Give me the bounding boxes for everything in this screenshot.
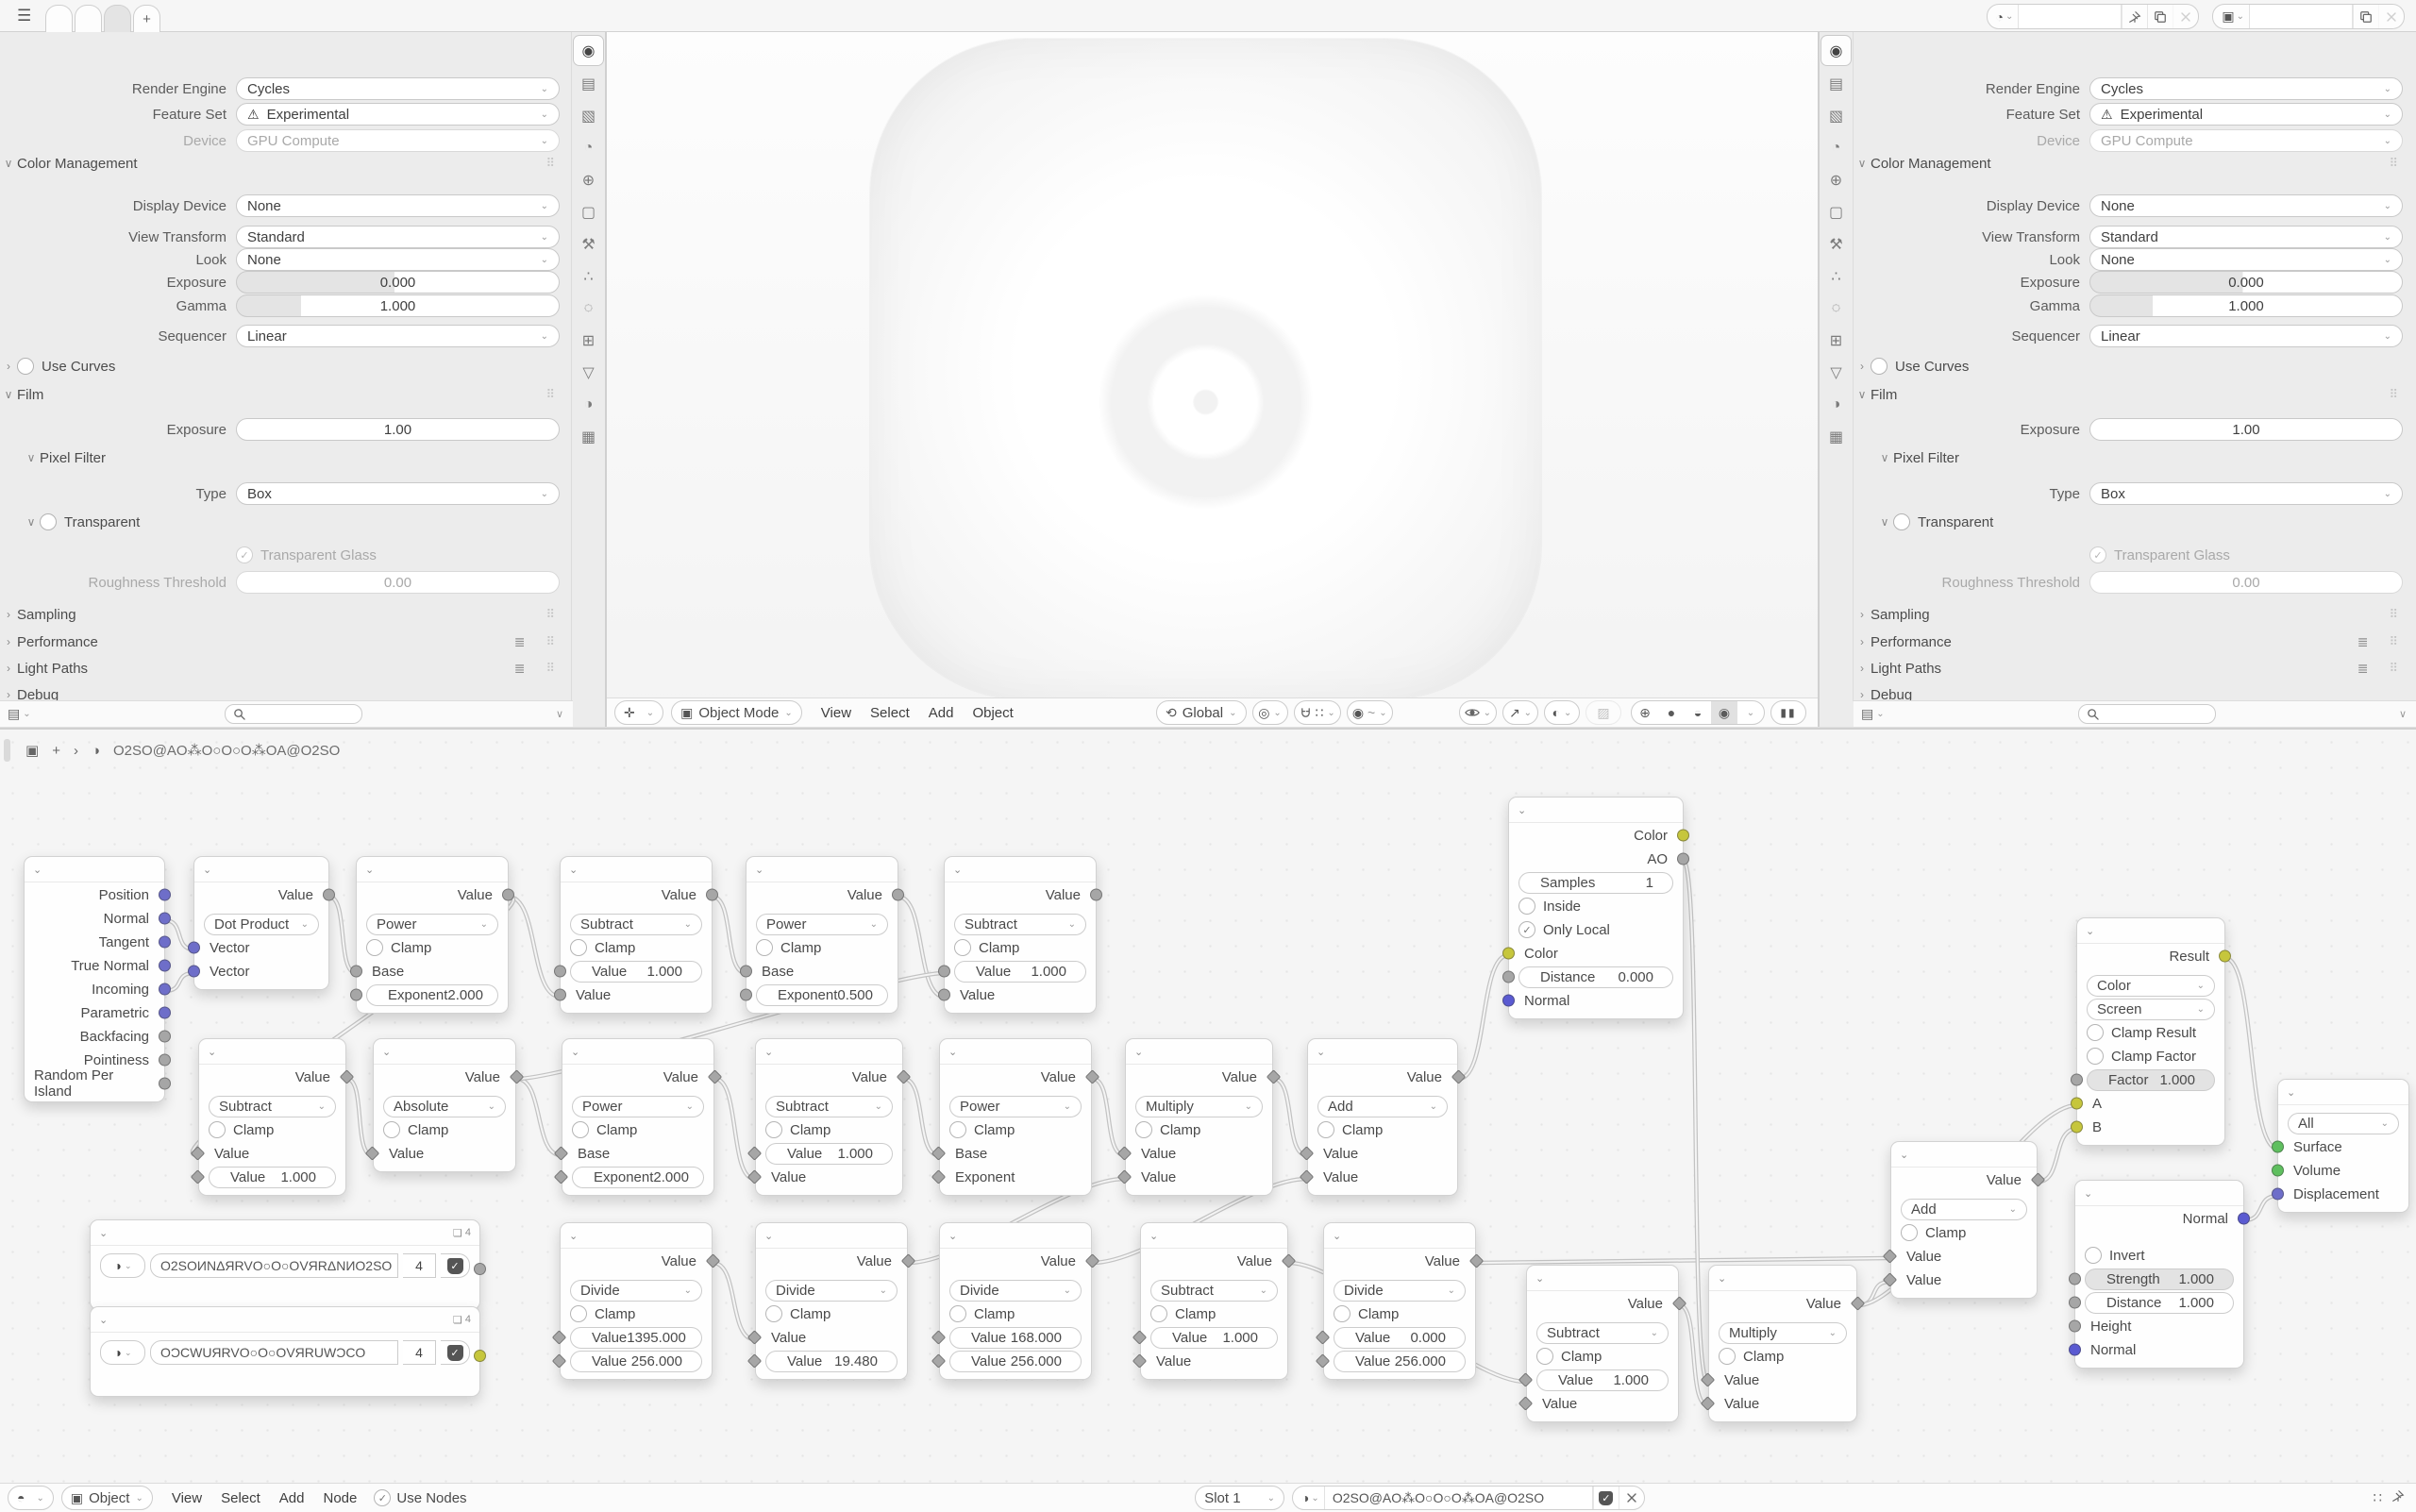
socket[interactable] [1316,1330,1331,1345]
socket[interactable] [1117,1169,1132,1184]
section-color-management[interactable]: ∨Color Management⠿ [1854,154,2416,173]
node-header[interactable]: ⌄ [940,1039,1091,1065]
node-math[interactable]: ⌄ValuePower⌄ClampBaseExponent2.000 [562,1038,714,1196]
tab-data[interactable]: ▽ [1821,358,1851,387]
node-header[interactable]: ⌄ [194,857,328,882]
material-datablock-button[interactable]: ◑⌄ [100,1340,145,1365]
socket[interactable] [159,889,171,901]
socket[interactable] [2069,1344,2081,1356]
tab-texture[interactable]: ▦ [574,422,603,451]
socket[interactable] [474,1350,486,1362]
section-chevron-icon[interactable]: ∨ [23,515,40,529]
menu-node[interactable]: Node [324,1490,358,1506]
socket[interactable] [510,1069,525,1084]
presets-icon[interactable]: ≣ [2357,661,2369,677]
socket[interactable] [188,942,200,954]
socket[interactable] [323,889,335,901]
grip-icon[interactable]: ⠿ [2389,661,2399,676]
node-checkbox[interactable] [2085,1247,2102,1264]
node-checkbox[interactable] [1317,1121,1334,1138]
tab-texture[interactable]: ▦ [1821,422,1851,451]
socket[interactable] [747,1353,763,1369]
node-math[interactable]: ⌄ValueDot Product⌄VectorVector [193,856,329,990]
menu-add[interactable]: Add [929,705,954,721]
visibility-button[interactable]: ⌄ [1459,700,1497,725]
value-exposure[interactable]: 1.00 [2089,418,2403,441]
grip-icon[interactable]: ⠿ [545,387,556,402]
node-checkbox[interactable] [1334,1305,1351,1322]
section-chevron-icon[interactable]: › [1854,688,1871,701]
node-header[interactable]: ⌄❏4 [91,1307,479,1333]
tab-output[interactable]: ▤ [574,69,603,98]
socket[interactable] [931,1353,947,1369]
socket[interactable] [159,1031,171,1043]
dropdown-feature-set[interactable]: ⚠Experimental⌄ [236,103,560,126]
node-header[interactable]: ⌄ [1308,1039,1457,1065]
user-count-button[interactable]: 4 [403,1253,436,1278]
node-header[interactable]: ⌄ [1709,1266,1856,1291]
section-chevron-icon[interactable]: › [1854,360,1871,373]
node-checkbox[interactable] [1135,1121,1152,1138]
snapping-icon[interactable]: ∷ [2373,1489,2382,1506]
node-value-field[interactable]: Value1.000 [209,1167,336,1188]
node-math[interactable]: ⌄ValueSubtract⌄ClampValueValue1.000 [198,1038,346,1196]
socket[interactable] [159,1078,171,1090]
filter-options-button[interactable]: ∨ [556,708,563,720]
socket[interactable] [1300,1169,1315,1184]
node-math[interactable]: ⌄ValueDivide⌄ClampValueValue19.480 [755,1222,908,1380]
section-use-curves[interactable]: ›Use Curves [0,357,573,376]
collapse-chevron-icon[interactable]: ⌄ [99,1227,108,1239]
node-math[interactable]: ⌄ValueSubtract⌄ClampValue1.000Value [1526,1265,1679,1422]
socket[interactable] [554,1146,569,1161]
tab-data[interactable]: ▽ [574,358,603,387]
tab-scene[interactable]: ◔ [1821,133,1851,162]
socket[interactable] [2219,950,2231,963]
datablock-name-field[interactable]: OƆCWUЯRVO○O○OVЯRUWƆCO [150,1340,398,1365]
section-chevron-icon[interactable]: ∨ [23,451,40,464]
node-header[interactable]: ⌄ [940,1223,1091,1249]
datablock-name-field[interactable]: O2SOИNΔЯRVO○O○OVЯRΔNИO2SO [150,1253,398,1278]
node-header[interactable]: ⌄❏4 [91,1220,479,1246]
node-math[interactable]: ⌄ValueDivide⌄ClampValue1395.000Value256.… [560,1222,713,1380]
shading-wireframe-button[interactable]: ⊕ [1632,701,1658,724]
dropdown-device[interactable]: GPU Compute⌄ [236,129,560,152]
menu-object[interactable]: Object [972,705,1013,721]
node-math[interactable]: ⌄ResultColor⌄Screen⌄Clamp ResultClamp Fa… [2076,917,2225,1146]
node-value-field[interactable]: Strength1.000 [2085,1268,2234,1290]
grip-icon[interactable]: ⠿ [545,634,556,649]
node-value-field[interactable]: Exponent2.000 [366,984,498,1006]
node-dropdown[interactable]: Add⌄ [1317,1096,1448,1117]
section-film[interactable]: ∨Film⠿ [1854,385,2416,404]
filter-options-button[interactable]: ∨ [2399,708,2407,720]
node-checkbox[interactable]: ✓ [1518,921,1535,938]
socket[interactable] [931,1146,947,1161]
collapse-chevron-icon[interactable]: ⌄ [755,864,763,876]
pin-icon[interactable] [2122,5,2147,28]
section-chevron-icon[interactable]: › [0,360,17,373]
socket[interactable] [2069,1297,2081,1309]
value-gamma[interactable]: 1.000 [236,294,560,317]
dropdown-feature-set[interactable]: ⚠Experimental⌄ [2089,103,2403,126]
node-header[interactable]: ⌄ [1141,1223,1287,1249]
user-count-button[interactable]: 4 [403,1340,436,1365]
section-chevron-icon[interactable]: › [1854,608,1871,621]
tab-particles[interactable]: ∴ [1821,261,1851,291]
section-chevron-icon[interactable]: › [1854,635,1871,648]
socket[interactable] [2272,1141,2284,1153]
section-pixel-filter[interactable]: ∨Pixel Filter [0,448,573,467]
dropdown-look[interactable]: None⌄ [2089,248,2403,271]
node-dropdown[interactable]: Divide⌄ [570,1280,702,1302]
grip-icon[interactable]: ⠿ [2389,387,2399,402]
section-sampling[interactable]: ›Sampling⠿ [1854,605,2416,624]
search-input[interactable] [225,704,362,724]
node-dropdown[interactable]: Absolute⌄ [383,1096,506,1117]
section-checkbox[interactable] [1893,513,1910,530]
socket[interactable] [747,1146,763,1161]
tab-render[interactable]: ◉ [1820,35,1852,66]
collapse-chevron-icon[interactable]: ⌄ [764,1230,773,1242]
node-header[interactable]: ⌄ [561,857,712,882]
socket[interactable] [554,966,566,978]
node-header[interactable]: ⌄ [1891,1142,2037,1168]
dropdown-display-device[interactable]: None⌄ [236,194,560,217]
socket[interactable] [2071,1098,2083,1110]
section-light-paths[interactable]: ›Light Paths≣⠿ [1854,659,2416,678]
pivot-point-button[interactable]: ◎⌄ [1252,700,1288,725]
node-checkbox[interactable] [1901,1224,1918,1241]
tab-world[interactable]: ⊕ [574,165,603,194]
socket[interactable] [931,1169,947,1184]
node-math[interactable]: ⌄ValuePower⌄ClampBaseExponent0.500 [746,856,898,1014]
node-header[interactable]: ⌄ [1509,798,1683,823]
node-dropdown[interactable]: Divide⌄ [765,1280,898,1302]
socket[interactable] [1132,1353,1148,1369]
node-dropdown[interactable]: Power⌄ [572,1096,704,1117]
search-input[interactable] [2078,704,2216,724]
collapse-chevron-icon[interactable]: ⌄ [1134,1046,1143,1058]
node-header[interactable]: ⌄ [2278,1080,2408,1105]
node-editor-type-button[interactable]: ◓⌄ [8,1486,54,1510]
properties-editor-type-button[interactable]: ▤⌄ [8,706,31,722]
node-value-field[interactable]: Exponent0.500 [756,984,888,1006]
node-header[interactable]: ⌄ [374,1039,515,1065]
node-header[interactable]: ⌄ [747,857,898,882]
socket[interactable] [1316,1353,1331,1369]
node-value-field[interactable]: Value256.000 [570,1351,702,1372]
shading-options-chevron[interactable]: ⌄ [1737,701,1764,724]
node-math[interactable]: ⌄ValueMultiply⌄ClampValueValue [1125,1038,1273,1196]
tab-material[interactable]: ◑ [1821,390,1851,419]
node-math[interactable]: ⌄ValueSubtract⌄ClampValue1.000Value [1140,1222,1288,1380]
node-checkbox[interactable] [765,1121,782,1138]
collapse-chevron-icon[interactable]: ⌄ [99,1314,108,1326]
grip-icon[interactable]: ⠿ [2389,607,2399,622]
socket[interactable] [1282,1253,1297,1268]
presets-icon[interactable]: ≣ [514,661,526,677]
mode-dropdown[interactable]: ▣Object Mode⌄ [671,700,802,725]
fake-user-toggle[interactable]: ✓ [1593,1487,1619,1509]
socket[interactable] [1502,971,1515,983]
slot-dropdown[interactable]: Slot 1⌄ [1195,1486,1284,1510]
tab-output[interactable]: ▤ [1821,69,1851,98]
socket[interactable] [1672,1296,1687,1311]
snap-button[interactable]: ∷⌄ [1294,700,1341,725]
socket[interactable] [552,1330,567,1345]
dropdown-type[interactable]: Box⌄ [2089,482,2403,505]
copy-icon[interactable] [2353,5,2378,28]
socket[interactable] [1851,1296,1866,1311]
properties-editor-type-button[interactable]: ▤⌄ [1861,706,1885,722]
shading-material-button[interactable]: ◒ [1685,701,1711,724]
collapse-chevron-icon[interactable]: ⌄ [948,1230,957,1242]
section-color-management[interactable]: ∨Color Management⠿ [0,154,573,173]
socket[interactable] [1502,995,1515,1007]
socket[interactable] [191,1146,206,1161]
socket[interactable] [552,1353,567,1369]
node-header[interactable]: ⌄ [199,1039,345,1065]
socket[interactable] [2238,1213,2250,1225]
use-nodes-checkbox[interactable]: ✓Use Nodes [374,1489,466,1506]
collapse-chevron-icon[interactable]: ⌄ [33,864,42,876]
node-dropdown[interactable]: Subtract⌄ [1536,1322,1669,1344]
socket[interactable] [740,966,752,978]
node-header[interactable]: ⌄ [945,857,1096,882]
node-checkbox[interactable] [572,1121,589,1138]
node-value-field[interactable]: Exponent2.000 [572,1167,704,1188]
collapse-chevron-icon[interactable]: ⌄ [1317,1046,1325,1058]
node-header[interactable]: ⌄ [2075,1181,2243,1206]
menu-view[interactable]: View [821,705,851,721]
dropdown-sequencer[interactable]: Linear⌄ [2089,325,2403,347]
socket[interactable] [159,913,171,925]
tab-modifiers[interactable]: ⚒ [574,229,603,259]
workspace-tab[interactable] [45,5,73,32]
value-exposure[interactable]: 1.00 [236,418,560,441]
section-use-curves[interactable]: ›Use Curves [1854,357,2416,376]
proportional-editing-button[interactable]: ◉~⌄ [1347,700,1393,725]
collapse-chevron-icon[interactable]: ⌄ [1518,804,1526,816]
node-header[interactable]: ⌄ [756,1039,902,1065]
material-datablock-button[interactable]: ◑⌄ [100,1253,145,1278]
socket[interactable] [2069,1320,2081,1333]
node-math[interactable]: ⌄ValueSubtract⌄ClampValue1.000Value [560,856,713,1014]
socket[interactable] [2272,1188,2284,1201]
collapse-chevron-icon[interactable]: ⌄ [1900,1149,1908,1161]
section-chevron-icon[interactable]: ∨ [0,157,17,170]
shading-solid-button[interactable]: ● [1658,701,1685,724]
section-chevron-icon[interactable]: › [0,688,17,701]
section-pixel-filter[interactable]: ∨Pixel Filter [1854,448,2416,467]
view-layer-icon[interactable]: ▣⌄ [2213,8,2249,25]
socket[interactable] [2031,1172,2046,1187]
socket[interactable] [159,960,171,972]
node-header[interactable]: ⌄ [357,857,508,882]
node-value-field[interactable]: Value1.000 [765,1143,893,1165]
node-checkbox[interactable] [383,1121,400,1138]
node-math[interactable]: ⌄ValueAdd⌄ClampValueValue [1890,1141,2038,1299]
dropdown-render-engine[interactable]: Cycles⌄ [2089,77,2403,100]
workspace-tab[interactable] [104,5,131,32]
socket[interactable] [747,1330,763,1345]
socket[interactable] [708,1069,723,1084]
checkbox[interactable]: ✓ [2089,546,2106,563]
socket[interactable] [740,989,752,1001]
material-datablock-button[interactable]: ◑⌄ [1293,1490,1324,1505]
tab-physics[interactable]: ◌ [1821,294,1851,323]
node-math[interactable]: ⌄ValuePower⌄ClampBaseExponent2.000 [356,856,509,1014]
section-transparent[interactable]: ∨Transparent [1854,512,2416,531]
node-dropdown[interactable]: Power⌄ [366,914,498,935]
node-header[interactable]: ⌄ [25,857,164,882]
menu-icon[interactable]: ☰ [17,7,31,25]
section-debug[interactable]: ›Debug [1854,685,2416,701]
grip-icon[interactable]: ⠿ [2389,156,2399,171]
socket[interactable] [1300,1146,1315,1161]
node-value-field[interactable]: Value256.000 [1334,1351,1466,1372]
socket[interactable] [1085,1069,1100,1084]
socket[interactable] [1132,1330,1148,1345]
dropdown-type[interactable]: Box⌄ [236,482,560,505]
dropdown-look[interactable]: None⌄ [236,248,560,271]
node-header[interactable]: ⌄ [562,1039,713,1065]
section-chevron-icon[interactable]: › [0,635,17,648]
node-checkbox[interactable] [765,1305,782,1322]
menu-view[interactable]: View [172,1490,202,1506]
node-dropdown[interactable]: Add⌄ [1901,1199,2027,1220]
collapse-chevron-icon[interactable]: ⌄ [208,1046,216,1058]
socket[interactable] [2272,1165,2284,1177]
socket[interactable] [706,889,718,901]
unlink-material-button[interactable] [1619,1487,1644,1509]
scene-selector-name-field[interactable] [2018,5,2122,28]
socket[interactable] [340,1069,355,1084]
node-math[interactable]: ⌄ValueSubtract⌄ClampValue1.000Value [755,1038,903,1196]
tab-view-layer[interactable]: ▧ [1821,101,1851,130]
node-header[interactable]: ⌄ [1324,1223,1475,1249]
tab-particles[interactable]: ∴ [574,261,603,291]
orientation-dropdown[interactable]: ⟲Global⌄ [1156,700,1246,725]
socket[interactable] [938,966,950,978]
value-roughness-threshold[interactable]: 0.00 [236,571,560,594]
socket[interactable] [747,1169,763,1184]
node-canvas[interactable]: ⌄PositionNormalTangentTrue NormalIncomin… [0,730,2416,1484]
node-math[interactable]: ⌄ColorAOSamples1Inside✓Only LocalColorDi… [1508,797,1684,1019]
tab-scene[interactable]: ◔ [574,133,603,162]
node-dropdown[interactable]: Power⌄ [756,914,888,935]
node-checkbox[interactable] [949,1305,966,1322]
node-dropdown[interactable]: Screen⌄ [2087,999,2215,1020]
node-header[interactable]: ⌄ [2077,918,2224,944]
socket[interactable] [1469,1253,1485,1268]
socket[interactable] [159,983,171,996]
value-exposure[interactable]: 0.000 [2089,271,2403,294]
gizmos-button[interactable]: ↗⌄ [1502,700,1538,725]
node-dropdown[interactable]: Subtract⌄ [954,914,1086,935]
collapse-chevron-icon[interactable]: ⌄ [365,864,374,876]
socket[interactable] [892,889,904,901]
section-chevron-icon[interactable]: ∨ [1854,388,1871,401]
node-texture[interactable]: ⌄❏4◑⌄OƆCWUЯRVO○O○OVЯRUWƆCO4✓ [90,1306,480,1397]
socket[interactable] [1677,853,1689,865]
socket[interactable] [1267,1069,1282,1084]
value-gamma[interactable]: 1.000 [2089,294,2403,317]
section-chevron-icon[interactable]: ∨ [1876,451,1893,464]
node-value-field[interactable]: Value0.000 [1334,1327,1466,1349]
collapse-chevron-icon[interactable]: ⌄ [203,864,211,876]
node-header[interactable]: ⌄ [756,1223,907,1249]
socket[interactable] [2071,1121,2083,1134]
socket[interactable] [159,1054,171,1067]
node-checkbox[interactable] [1518,898,1535,915]
presets-icon[interactable]: ≣ [2357,634,2369,650]
socket[interactable] [365,1146,380,1161]
collapse-chevron-icon[interactable]: ⌄ [953,864,962,876]
socket[interactable] [159,936,171,949]
node-checkbox[interactable] [570,939,587,956]
node-checkbox[interactable] [949,1121,966,1138]
node-math[interactable]: ⌄PositionNormalTangentTrue NormalIncomin… [24,856,165,1102]
socket[interactable] [502,889,514,901]
region-toggle[interactable] [4,739,10,762]
node-dropdown[interactable]: Color⌄ [2087,975,2215,997]
section-chevron-icon[interactable]: › [1854,662,1871,675]
overlays-button[interactable]: ◐⌄ [1544,700,1580,725]
collapse-chevron-icon[interactable]: ⌄ [2084,1187,2092,1200]
section-light-paths[interactable]: ›Light Paths≣⠿ [0,659,573,678]
node-math[interactable]: ⌄ValueSubtract⌄ClampValue1.000Value [944,856,1097,1014]
collapse-chevron-icon[interactable]: ⌄ [948,1046,957,1058]
node-checkbox[interactable] [1536,1348,1553,1365]
socket[interactable] [1701,1372,1716,1387]
collapse-chevron-icon[interactable]: ⌄ [2287,1086,2295,1099]
node-math[interactable]: ⌄ValueAbsolute⌄ClampValue [373,1038,516,1172]
node-checkbox[interactable] [2087,1048,2104,1065]
dropdown-display-device[interactable]: None⌄ [2089,194,2403,217]
add-workspace-tab[interactable]: + [133,5,160,32]
node-dropdown[interactable]: Divide⌄ [1334,1280,1466,1302]
scene-icon[interactable]: ◔⌄ [1988,9,2019,25]
socket[interactable] [901,1253,916,1268]
socket[interactable] [188,966,200,978]
copy-icon[interactable] [2147,5,2173,28]
node-checkbox[interactable] [756,939,773,956]
socket[interactable] [1518,1396,1534,1411]
node-math[interactable]: ⌄ValueAdd⌄ClampValueValue [1307,1038,1458,1196]
dropdown-view-transform[interactable]: Standard⌄ [2089,226,2403,248]
tab-object[interactable]: ▢ [1821,197,1851,227]
section-chevron-icon[interactable]: › [0,608,17,621]
menu-select[interactable]: Select [221,1490,260,1506]
node-dropdown[interactable]: Multiply⌄ [1719,1322,1847,1344]
section-chevron-icon[interactable]: ∨ [1854,157,1871,170]
socket[interactable] [159,1007,171,1019]
collapse-chevron-icon[interactable]: ⌄ [1535,1272,1544,1285]
section-checkbox[interactable] [1871,358,1887,375]
node-dropdown[interactable]: Divide⌄ [949,1280,1082,1302]
socket[interactable] [1085,1253,1100,1268]
collapse-chevron-icon[interactable]: ⌄ [1333,1230,1341,1242]
node-value-field[interactable]: Value19.480 [765,1351,898,1372]
section-performance[interactable]: ›Performance≣⠿ [1854,632,2416,651]
tab-physics[interactable]: ◌ [574,294,603,323]
node-header[interactable]: ⌄ [1527,1266,1678,1291]
presets-icon[interactable]: ≣ [514,634,526,650]
grip-icon[interactable]: ⠿ [545,661,556,676]
socket[interactable] [191,1169,206,1184]
